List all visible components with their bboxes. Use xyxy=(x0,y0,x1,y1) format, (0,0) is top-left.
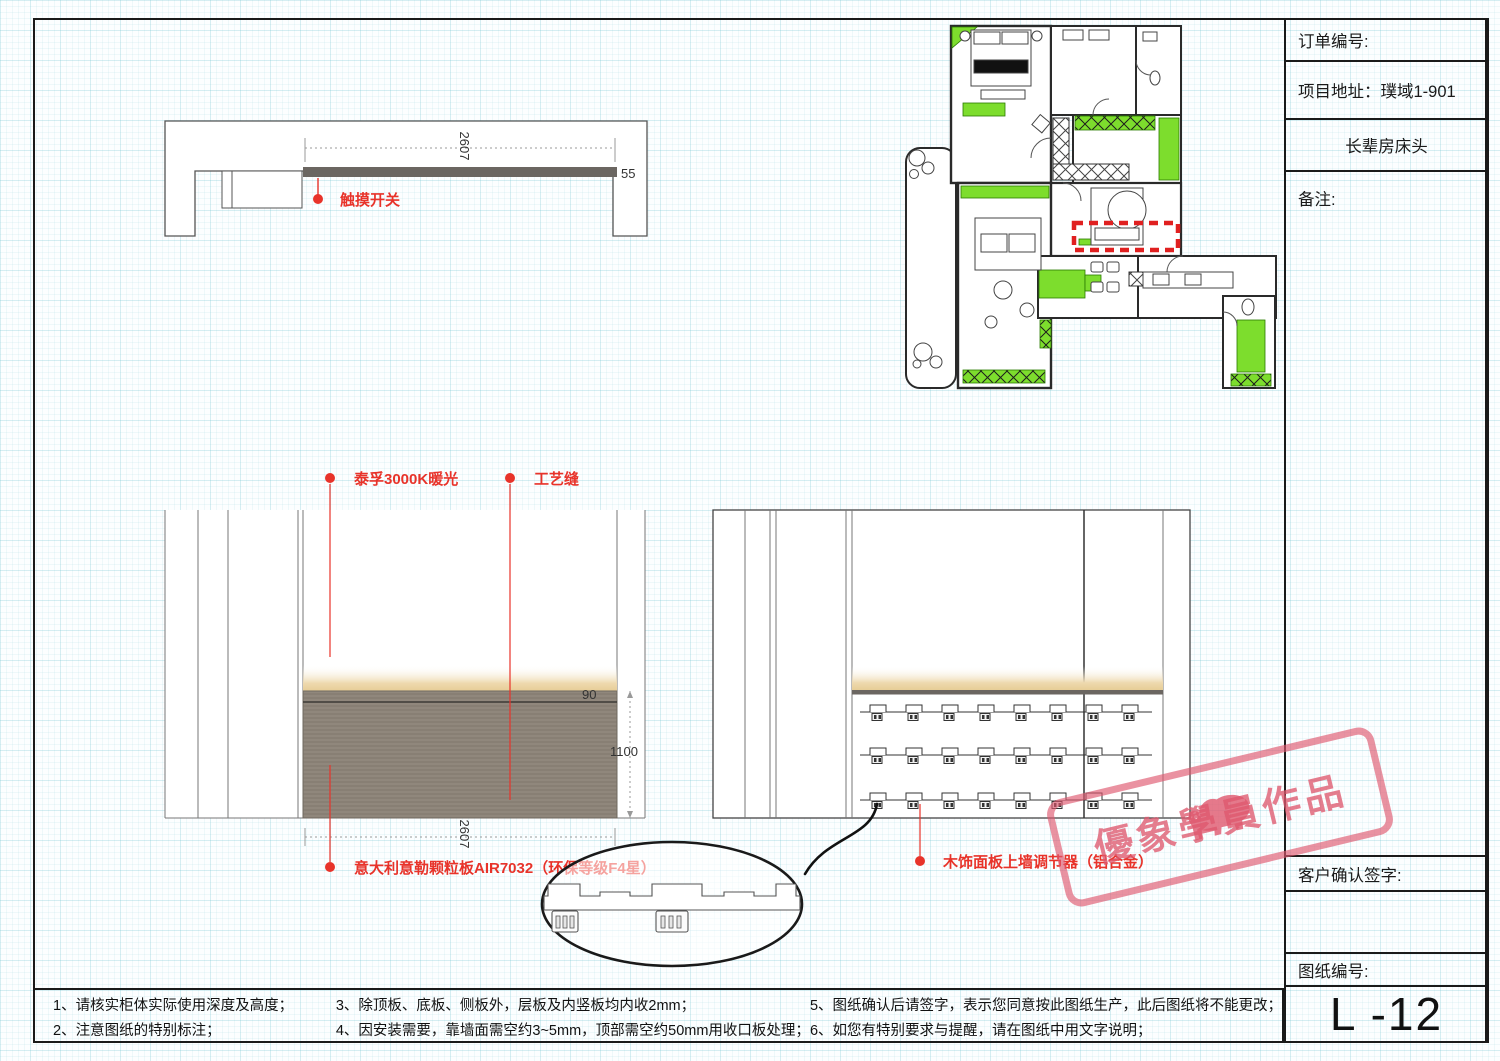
notes-col-2: 3、除顶板、底板、侧板外，层板及内竖板均内收2mm； 4、因安装需要，靠墙面需空… xyxy=(336,994,810,1041)
svg-text:2607: 2607 xyxy=(457,820,472,849)
order-no-row: 订单编号: xyxy=(1286,20,1487,62)
drawing-title: 长辈房床头 xyxy=(1345,133,1428,157)
project-address-row: 项目地址： 璞域1-901 xyxy=(1286,62,1487,120)
light-glow xyxy=(303,665,617,691)
floor-plan xyxy=(903,20,1283,415)
note-item: 2、注意图纸的特别标注； xyxy=(53,1019,336,1044)
address-label: 项目地址： xyxy=(1298,78,1381,102)
signature-space xyxy=(1286,892,1487,954)
order-no-label: 订单编号: xyxy=(1298,28,1369,52)
adjuster-clip-section xyxy=(552,911,578,932)
remarks-row: 备注: xyxy=(1286,172,1487,857)
note-item: 5、图纸确认后请签字，表示您同意按此图纸生产，此后图纸将不能更改； xyxy=(810,994,1282,1019)
svg-text:泰孚3000K暖光: 泰孚3000K暖光 xyxy=(353,470,458,488)
svg-text:2607: 2607 xyxy=(457,132,472,161)
notes-box: 1、请核实柜体实际使用深度及高度； 2、注意图纸的特别标注； 3、除顶板、底板、… xyxy=(33,988,1284,1043)
title-block: 订单编号: 项目地址： 璞域1-901 长辈房床头 备注: 客户确认签字: 图纸… xyxy=(1284,18,1489,1043)
note-item: 3、除顶板、底板、侧板外，层板及内竖板均内收2mm； xyxy=(336,994,810,1019)
sheet-no-label: 图纸编号: xyxy=(1298,958,1369,982)
note-item: 1、请核实柜体实际使用深度及高度； xyxy=(53,994,336,1019)
headboard-top-view: 2607 55 触摸开关 xyxy=(160,112,660,252)
dim-90: 90 xyxy=(582,687,596,702)
red-dot-icon xyxy=(313,194,323,204)
sheet-no-label-row: 图纸编号: xyxy=(1286,954,1487,987)
signature-row: 客户确认签字: xyxy=(1286,857,1487,892)
dim-55: 55 xyxy=(621,166,635,181)
address-value: 璞域1-901 xyxy=(1381,78,1456,102)
sign-label: 客户确认签字: xyxy=(1298,862,1402,886)
red-dot-icon xyxy=(505,473,515,483)
light-glow xyxy=(852,666,1163,690)
notes-col-1: 1、请核实柜体实际使用深度及高度； 2、注意图纸的特别标注； xyxy=(53,994,336,1041)
svg-text:触摸开关: 触摸开关 xyxy=(340,191,400,209)
light-strip xyxy=(852,690,1163,695)
svg-text:工艺缝: 工艺缝 xyxy=(534,470,579,488)
notes-col-3: 5、图纸确认后请签字，表示您同意按此图纸生产，此后图纸将不能更改； 6、如您有特… xyxy=(810,994,1282,1041)
touch-switch-callout: 触摸开关 xyxy=(313,178,400,209)
note-item: 4、因安装需要，靠墙面需空约3~5mm，顶部需空约50mm用收口板处理； xyxy=(336,1019,810,1044)
nightstand xyxy=(222,171,302,208)
drawing-title-row: 长辈房床头 xyxy=(1286,120,1487,172)
svg-text:1100: 1100 xyxy=(610,744,638,759)
svg-text:木饰面板上墙调节器（铝合金）: 木饰面板上墙调节器（铝合金） xyxy=(942,853,1153,871)
remark-label: 备注: xyxy=(1298,186,1336,210)
detail-bubble xyxy=(538,792,888,982)
cabinet-outline xyxy=(713,510,1190,818)
note-item: 6、如您有特别要求与提醒，请在图纸中用文字说明； xyxy=(810,1019,1282,1044)
red-dot-icon xyxy=(325,862,335,872)
red-dot-icon xyxy=(325,473,335,483)
sheet-number: L -12 xyxy=(1330,987,1443,1041)
sheet-no-row: L -12 xyxy=(1286,987,1487,1041)
red-dot-icon xyxy=(915,856,925,866)
adjuster-clip-section xyxy=(656,911,688,932)
headboard-panel-section xyxy=(303,167,617,177)
